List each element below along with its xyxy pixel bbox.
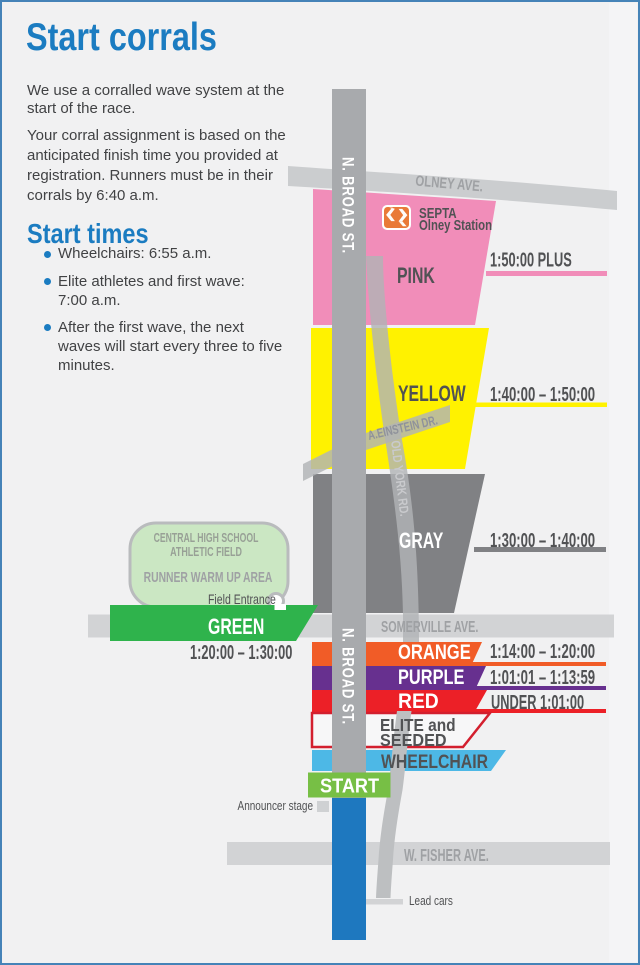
svg-text:Lead cars: Lead cars xyxy=(409,895,453,908)
svg-text:ORANGE: ORANGE xyxy=(398,641,471,664)
svg-text:1:14:00 – 1:20:00: 1:14:00 – 1:20:00 xyxy=(490,640,595,662)
svg-text:Announcer stage: Announcer stage xyxy=(238,800,313,813)
svg-text:SEEDED: SEEDED xyxy=(380,730,447,750)
svg-text:RED: RED xyxy=(398,690,439,713)
svg-text:RUNNER WARM UP AREA: RUNNER WARM UP AREA xyxy=(144,568,273,585)
svg-text:PURPLE: PURPLE xyxy=(398,665,464,688)
svg-text:W. FISHER AVE.: W. FISHER AVE. xyxy=(404,845,489,865)
svg-text:1:01:01 – 1:13:59: 1:01:01 – 1:13:59 xyxy=(490,666,595,688)
svg-text:1:50:00 PLUS: 1:50:00 PLUS xyxy=(490,249,572,272)
svg-text:N. BROAD ST.: N. BROAD ST. xyxy=(338,628,357,725)
svg-text:SOMERVILLE AVE.: SOMERVILLE AVE. xyxy=(381,618,478,635)
svg-text:CENTRAL HIGH SCHOOL: CENTRAL HIGH SCHOOL xyxy=(154,532,259,546)
svg-text:GREEN: GREEN xyxy=(208,616,264,640)
svg-text:Olney Station: Olney Station xyxy=(419,216,492,233)
svg-text:PINK: PINK xyxy=(397,265,435,289)
svg-text:1:40:00 – 1:50:00: 1:40:00 – 1:50:00 xyxy=(490,383,595,405)
svg-text:ATHLETIC FIELD: ATHLETIC FIELD xyxy=(170,546,242,560)
svg-text:START: START xyxy=(320,774,379,797)
svg-text:UNDER 1:01:00: UNDER 1:01:00 xyxy=(491,691,584,714)
svg-text:GRAY: GRAY xyxy=(399,530,443,554)
svg-text:N. BROAD ST.: N. BROAD ST. xyxy=(338,157,357,254)
svg-text:1:20:00 – 1:30:00: 1:20:00 – 1:30:00 xyxy=(190,641,292,664)
svg-text:YELLOW: YELLOW xyxy=(398,383,466,407)
svg-text:WHEELCHAIR: WHEELCHAIR xyxy=(381,750,488,772)
